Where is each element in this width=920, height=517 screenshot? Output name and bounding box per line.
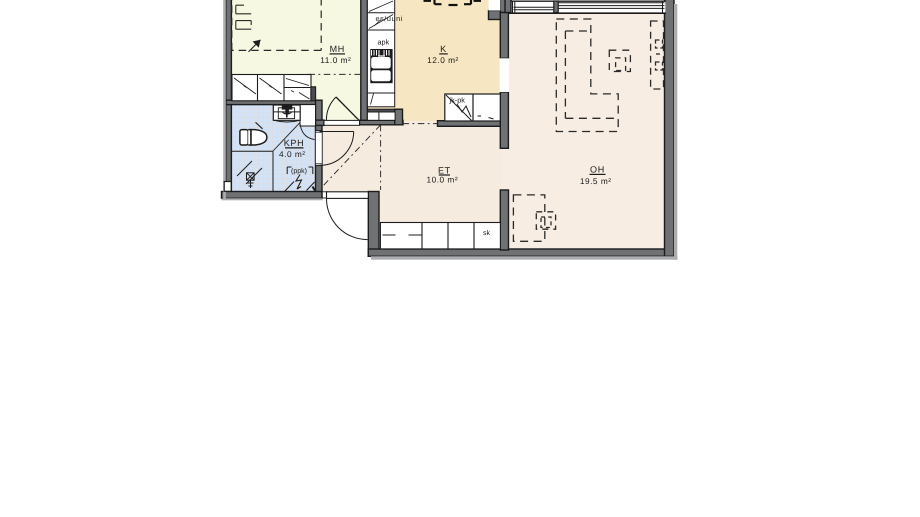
svg-text:MH: MH	[330, 44, 345, 54]
svg-text:19.5 m²: 19.5 m²	[580, 176, 612, 186]
svg-text:sk: sk	[483, 229, 491, 237]
svg-text:jk-pk: jk-pk	[449, 96, 466, 105]
svg-text:12.0 m²: 12.0 m²	[427, 55, 459, 65]
svg-text:OH: OH	[590, 165, 605, 175]
svg-text:es/uuni: es/uuni	[376, 14, 403, 23]
svg-text:10.0 m²: 10.0 m²	[426, 174, 458, 184]
svg-text:apk: apk	[378, 38, 390, 47]
svg-text:11.0 m²: 11.0 m²	[320, 55, 351, 65]
svg-text:K: K	[440, 44, 447, 54]
svg-text:4.0 m²: 4.0 m²	[279, 149, 306, 159]
svg-text:KPH: KPH	[284, 138, 305, 148]
svg-text:(ppk): (ppk)	[291, 167, 307, 175]
